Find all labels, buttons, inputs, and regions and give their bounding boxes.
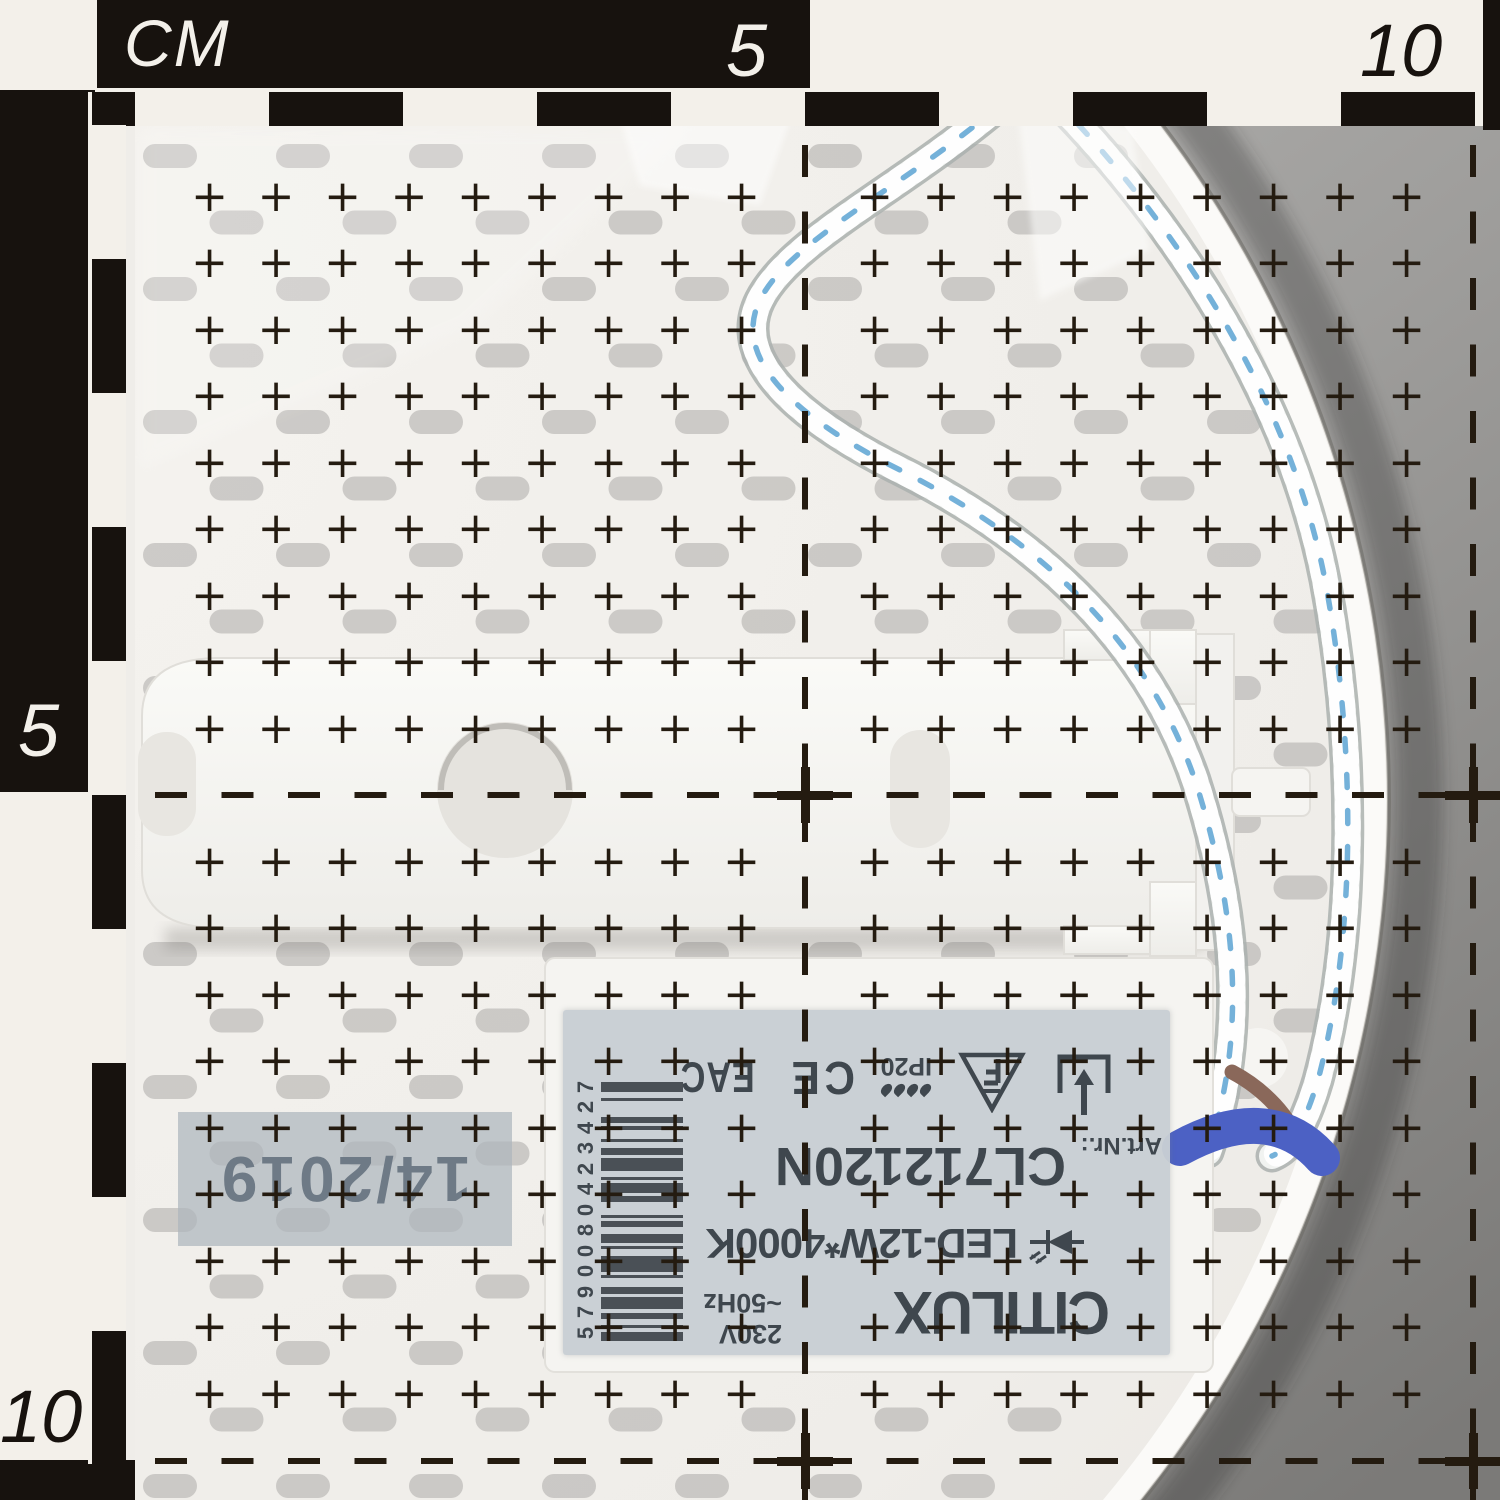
droplet-icon — [892, 1082, 908, 1098]
droplet-icon — [905, 1082, 921, 1098]
barcode-digit: 7 — [576, 1306, 596, 1318]
barcode-digit: 9 — [576, 1286, 596, 1298]
barcode-digit: 3 — [576, 1142, 596, 1154]
barcode-digit: 8 — [576, 1224, 596, 1236]
ruler-ticks-left — [92, 125, 126, 1460]
certification-icons-row: IP20 CE EAC — [680, 1051, 1116, 1117]
ce-mark: CE — [787, 1051, 855, 1105]
article-label: Art.Nr.: — [1081, 1131, 1162, 1159]
barcode-digit: 0 — [576, 1245, 596, 1257]
eac-mark: EAC — [680, 1051, 755, 1100]
frequency-value: ~50Hz — [703, 1287, 782, 1318]
ruler-top-end-bar — [1483, 0, 1500, 130]
lamp-spec-text: LED-12W*4000K — [707, 1219, 1018, 1267]
ip-rating-block: IP20 — [881, 1051, 932, 1096]
date-stamp: 14/2019 — [178, 1112, 512, 1246]
ruler-left-black-segment — [0, 90, 92, 792]
barcode-digit: 5 — [576, 1327, 596, 1339]
bracket-slot-hole — [890, 730, 950, 848]
article-number: CL712120N — [775, 1135, 1066, 1197]
barcode-digit: 4 — [576, 1183, 596, 1195]
f-triangle-icon — [958, 1051, 1026, 1113]
ruler-left-10-label: 10 — [0, 1380, 82, 1454]
product-spec-label: CITILUX 230V ~50Hz LED-12W*4000K Art.Nr.… — [563, 1010, 1170, 1355]
ruler-left-white-segment — [0, 792, 92, 1460]
ruler-left-5-label: 5 — [18, 694, 59, 768]
ruler-unit-label: CM — [124, 10, 231, 76]
calibration-photo-scene: CITILUX 230V ~50Hz LED-12W*4000K Art.Nr.… — [0, 0, 1500, 1500]
bracket-shadow — [165, 928, 1205, 950]
ruler-ticks-top — [135, 92, 1483, 126]
ruler-corner-block — [0, 0, 97, 90]
barcode-digit: 0 — [576, 1265, 596, 1277]
barcode-digit: 4 — [576, 1122, 596, 1134]
ruler-top-black-segment — [0, 0, 810, 92]
led-diode-icon — [1028, 1222, 1086, 1264]
box-arrow-icon — [1052, 1051, 1116, 1117]
barcode-digit: 2 — [576, 1163, 596, 1175]
bracket-left-hole — [138, 732, 196, 836]
barcode-digit: 7 — [576, 1081, 596, 1093]
barcode-digit: 2 — [576, 1101, 596, 1113]
brand-logo: CITILUX — [895, 1278, 1110, 1347]
barcode-digit: 0 — [576, 1204, 596, 1216]
ruler-top-10-label: 10 — [1360, 14, 1442, 88]
droplet-icon — [879, 1082, 895, 1098]
power-rating: 230V ~50Hz — [703, 1287, 782, 1349]
date-stamp-text: 14/2019 — [219, 1142, 471, 1216]
ruler-top-5-label: 5 — [726, 14, 767, 88]
droplet-icon — [918, 1082, 934, 1098]
barcode-digits: 5790080423427 — [574, 1077, 598, 1343]
ruler-bottom-left-corner — [0, 1460, 135, 1500]
voltage-value: 230V — [703, 1318, 782, 1349]
droplet-icons — [882, 1083, 930, 1096]
ruler-tick-corner — [92, 92, 135, 126]
barcode — [601, 1079, 683, 1341]
ip-rating-text: IP20 — [881, 1051, 932, 1080]
lamp-spec-row: LED-12W*4000K — [707, 1219, 1086, 1267]
bracket-center-hole — [437, 722, 573, 858]
